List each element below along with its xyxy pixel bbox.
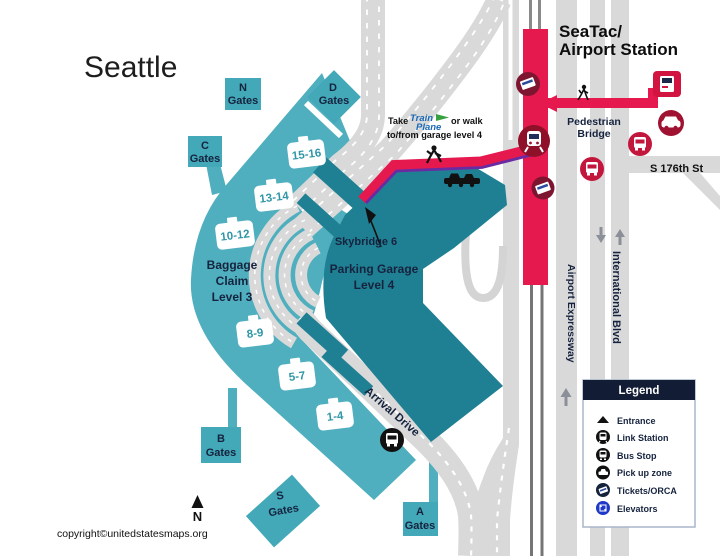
svg-text:Gates: Gates [228, 95, 259, 107]
svg-text:Pick up zone: Pick up zone [617, 468, 672, 478]
svg-text:Level 3: Level 3 [212, 290, 253, 304]
svg-text:SeaTac/: SeaTac/ [559, 22, 622, 41]
svg-text:5-7: 5-7 [288, 370, 306, 384]
svg-text:Tickets/ORCA: Tickets/ORCA [617, 486, 677, 496]
svg-text:Skybridge 6: Skybridge 6 [335, 236, 397, 248]
svg-text:copyright©unitedstatesmaps.org: copyright©unitedstatesmaps.org [57, 528, 208, 540]
svg-text:S 176th St: S 176th St [650, 163, 704, 175]
svg-text:Parking Garage: Parking Garage [330, 262, 419, 276]
svg-text:or walk: or walk [451, 116, 484, 126]
svg-text:Seattle: Seattle [84, 51, 177, 84]
svg-text:Gates: Gates [405, 520, 436, 532]
svg-text:Pedestrian: Pedestrian [567, 116, 621, 128]
svg-text:Level 4: Level 4 [354, 278, 395, 292]
svg-text:Entrance: Entrance [617, 416, 656, 426]
svg-text:Bridge: Bridge [577, 128, 610, 140]
svg-text:Airport Expressway: Airport Expressway [565, 264, 577, 363]
svg-text:D: D [329, 82, 337, 94]
svg-text:A: A [416, 506, 424, 518]
svg-text:1-4: 1-4 [326, 410, 345, 424]
svg-text:Elevators: Elevators [617, 504, 658, 514]
svg-text:B: B [217, 433, 225, 445]
svg-text:8-9: 8-9 [246, 327, 264, 341]
svg-text:Airport Station: Airport Station [559, 40, 678, 59]
svg-text:Claim: Claim [216, 274, 249, 288]
svg-text:Gates: Gates [190, 153, 221, 165]
svg-text:Gates: Gates [206, 447, 237, 459]
svg-text:C: C [201, 140, 209, 152]
svg-text:Bus Stop: Bus Stop [617, 451, 657, 461]
svg-text:Take: Take [388, 116, 408, 126]
svg-text:Plane: Plane [416, 122, 442, 133]
svg-text:Link Station: Link Station [617, 433, 669, 443]
svg-text:N: N [239, 82, 247, 94]
svg-text:Baggage: Baggage [207, 258, 258, 272]
svg-text:N: N [193, 509, 202, 524]
svg-text:Legend: Legend [619, 385, 660, 397]
svg-text:Gates: Gates [319, 95, 350, 107]
svg-text:International Blvd: International Blvd [610, 251, 622, 344]
